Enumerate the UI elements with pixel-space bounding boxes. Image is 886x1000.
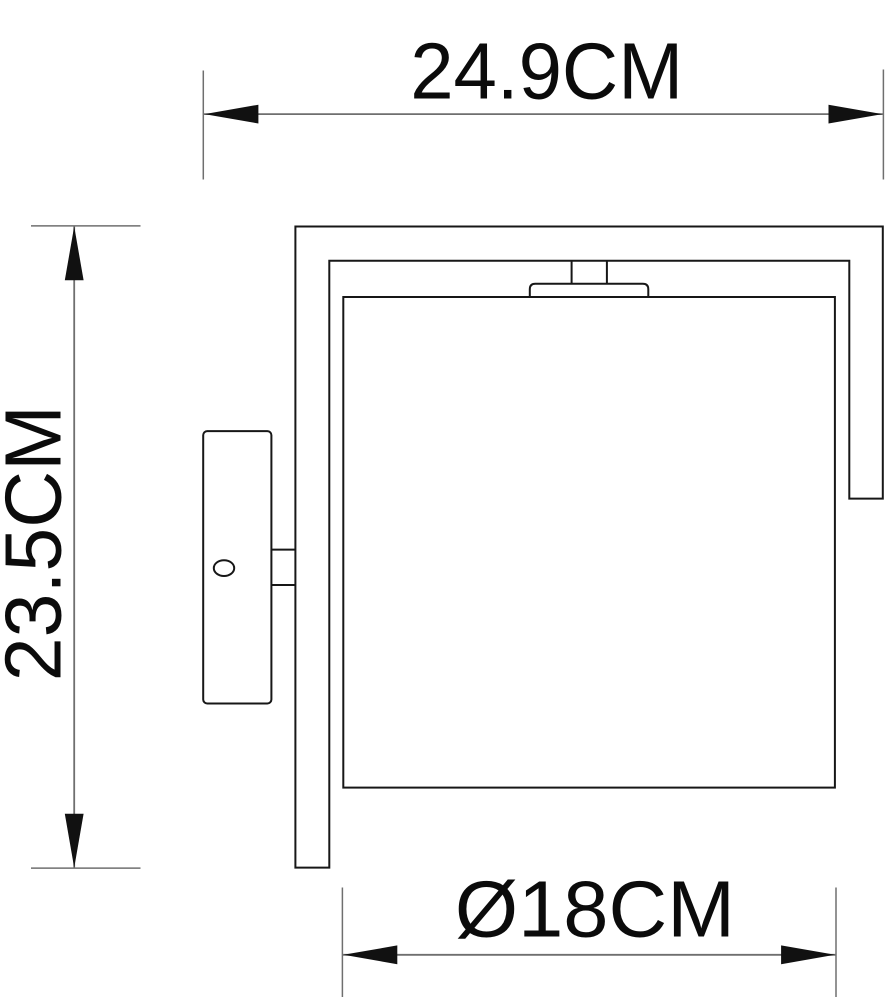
svg-text:Ø18CM: Ø18CM (455, 865, 735, 954)
svg-text:24.9CM: 24.9CM (410, 26, 683, 115)
svg-text:23.5CM: 23.5CM (0, 405, 77, 681)
